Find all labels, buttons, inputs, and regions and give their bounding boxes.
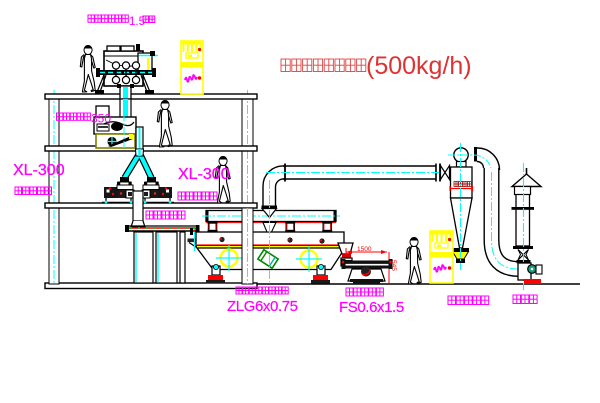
svg-text:XL-300: XL-300 — [13, 162, 65, 179]
svg-text:(500kg/h): (500kg/h) — [366, 52, 472, 80]
svg-text:XL-300: XL-300 — [178, 166, 230, 183]
svg-text:1500: 1500 — [357, 246, 372, 253]
svg-text:ZLG6x0.75: ZLG6x0.75 — [227, 298, 298, 315]
svg-text:350: 350 — [91, 112, 111, 126]
svg-text:FS0.6x1.5: FS0.6x1.5 — [339, 299, 404, 316]
